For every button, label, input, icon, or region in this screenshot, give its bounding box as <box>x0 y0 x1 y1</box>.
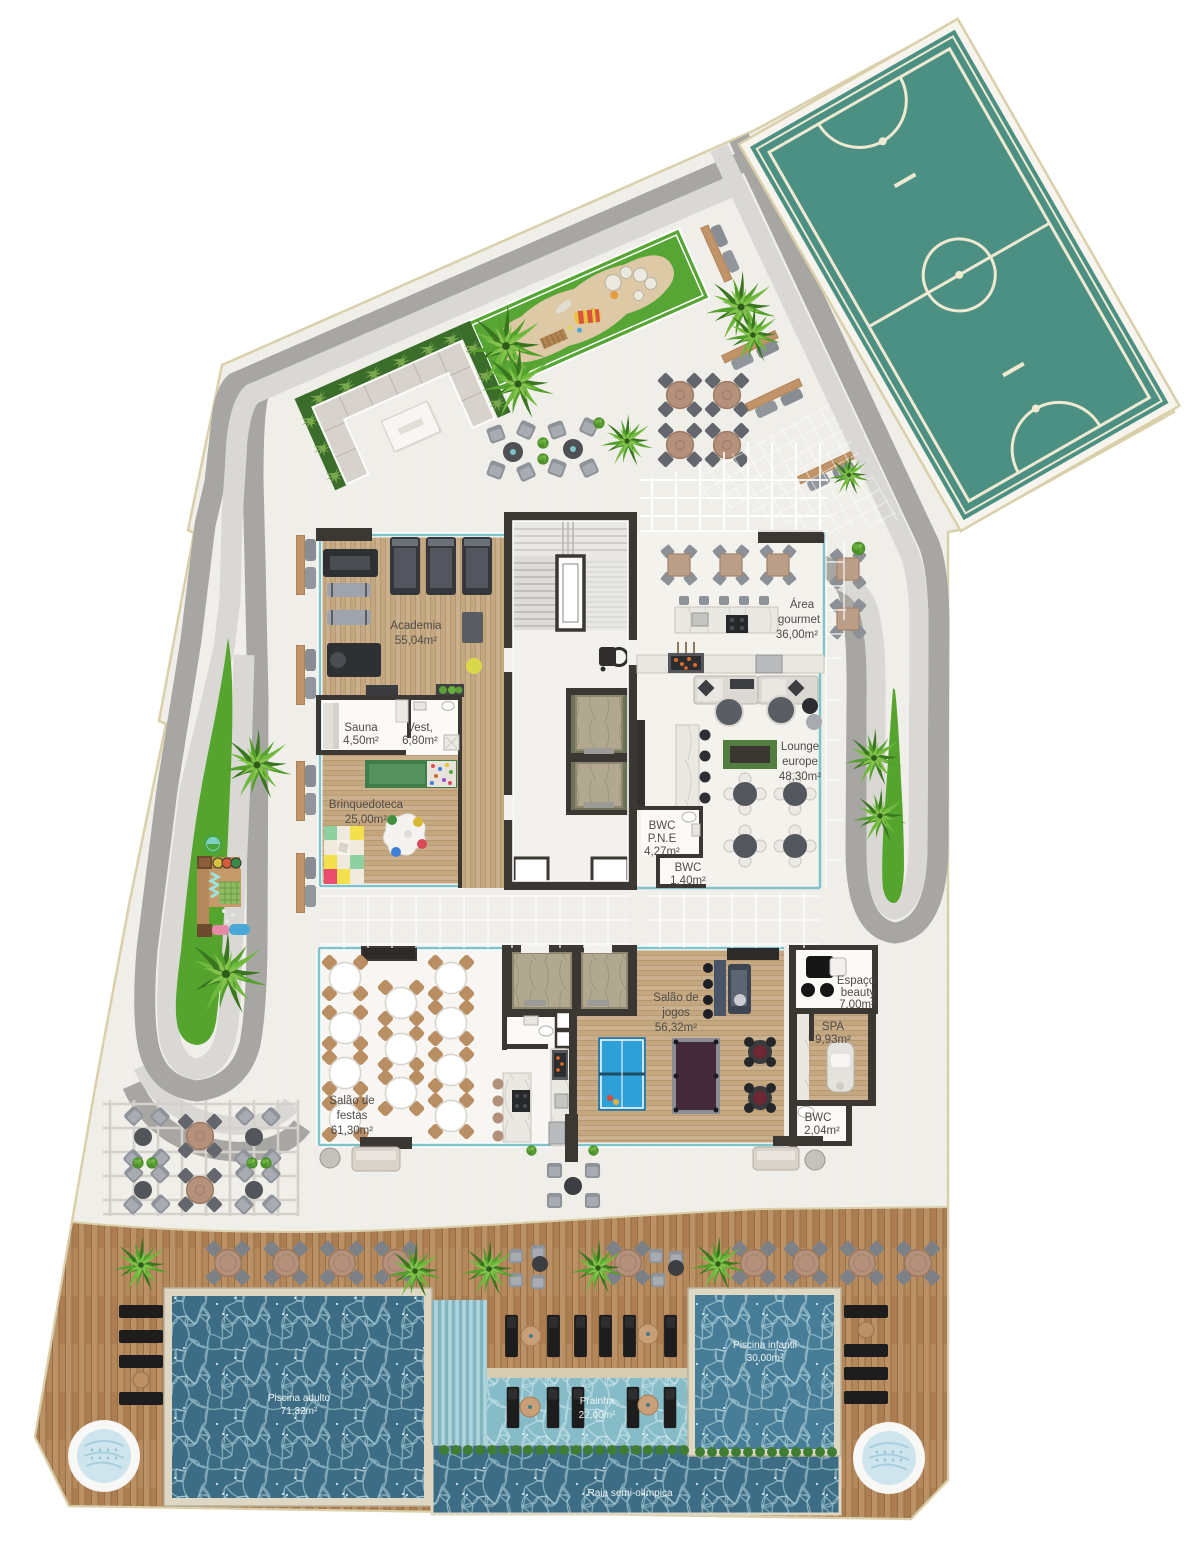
svg-text:Salão de: Salão de <box>653 992 698 1004</box>
svg-text:BWC: BWC <box>805 1112 832 1124</box>
svg-text:Lounge: Lounge <box>781 741 819 753</box>
svg-text:9,93m²: 9,93m² <box>815 1034 851 1046</box>
svg-text:Raia semi-olímpica: Raia semi-olímpica <box>587 1488 672 1499</box>
svg-text:festas: festas <box>337 1110 368 1122</box>
svg-text:1,40m²: 1,40m² <box>670 875 706 887</box>
svg-text:P.N.E: P.N.E <box>648 833 677 845</box>
svg-text:36,00m²: 36,00m² <box>776 629 818 641</box>
svg-text:4,50m²: 4,50m² <box>343 735 379 747</box>
svg-text:BWC: BWC <box>675 862 702 874</box>
svg-text:55,04m²: 55,04m² <box>395 635 437 647</box>
svg-text:europe: europe <box>782 756 818 768</box>
svg-text:22,00m²: 22,00m² <box>579 1410 616 1421</box>
svg-text:25,00m²: 25,00m² <box>345 814 387 826</box>
svg-text:Piscina adulto: Piscina adulto <box>268 1393 331 1404</box>
svg-text:Sauna: Sauna <box>344 722 378 734</box>
svg-text:Piscina infantil: Piscina infantil <box>733 1340 797 1351</box>
svg-text:Brinquedoteca: Brinquedoteca <box>329 799 404 811</box>
svg-text:7,00m²: 7,00m² <box>839 999 875 1011</box>
svg-text:48,30m²: 48,30m² <box>779 771 821 783</box>
svg-text:Prainha: Prainha <box>580 1396 615 1407</box>
svg-text:Vest,: Vest, <box>407 722 433 734</box>
svg-text:Salão de: Salão de <box>329 1095 374 1107</box>
svg-text:Espaço: Espaço <box>837 975 875 987</box>
svg-text:jogos: jogos <box>661 1007 690 1019</box>
svg-text:4,27m²: 4,27m² <box>644 846 680 858</box>
svg-text:SPA: SPA <box>822 1021 844 1033</box>
svg-text:gourmet: gourmet <box>778 614 821 626</box>
svg-text:2,04m²: 2,04m² <box>804 1125 840 1137</box>
svg-text:Área: Área <box>790 598 815 611</box>
svg-text:30,00m²: 30,00m² <box>747 1353 784 1364</box>
svg-text:beauty: beauty <box>841 987 876 999</box>
svg-text:Academia: Academia <box>390 620 442 632</box>
svg-text:71,32m²: 71,32m² <box>281 1406 318 1417</box>
svg-text:56,32m²: 56,32m² <box>655 1022 697 1034</box>
svg-text:61,30m²: 61,30m² <box>331 1125 373 1137</box>
svg-text:BWC: BWC <box>649 820 676 832</box>
svg-text:6,80m²: 6,80m² <box>402 735 438 747</box>
